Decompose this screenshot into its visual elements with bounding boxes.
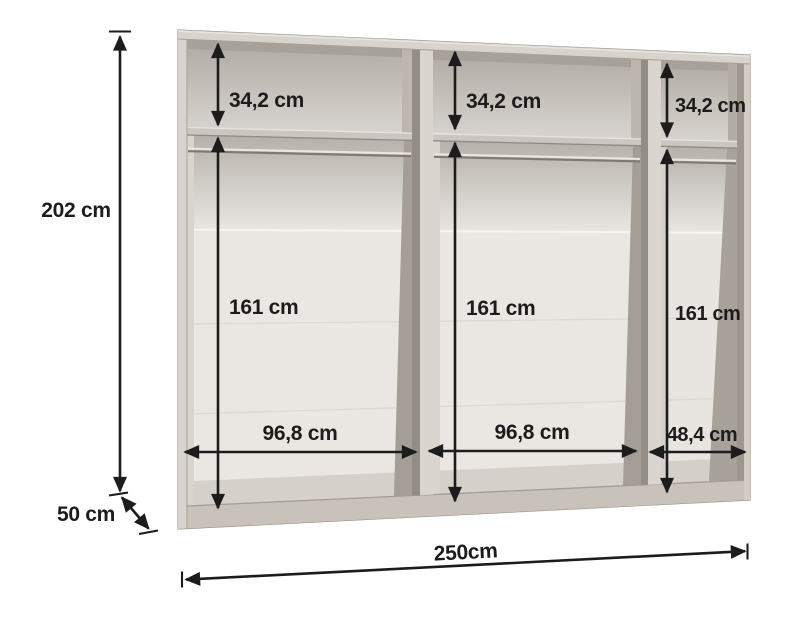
depth-dimension: 50 cm [57, 493, 158, 535]
compartment-3 [661, 60, 737, 484]
section-2-top-height-label: 34,2 cm [466, 90, 541, 113]
divider-2 [641, 59, 661, 485]
total-width-dimension: 250cm [182, 539, 748, 587]
height-dimension-label: 202 cm [41, 199, 110, 222]
section-1-hanging-height-label: 161 cm [229, 296, 298, 319]
diagram-canvas: 202 cm 50 cm 250cm 34,2 cm 161 cm 96,8 c… [0, 0, 788, 619]
section-1-top-height-label: 34,2 cm [229, 89, 304, 112]
height-dimension: 202 cm [41, 32, 131, 492]
right-panel [737, 55, 750, 501]
section-2-width-label: 96,8 cm [495, 421, 570, 444]
section-1-width-label: 96,8 cm [263, 422, 338, 445]
section-3-hanging-height-label: 161 cm [675, 303, 740, 325]
total-width-dimension-label: 250cm [433, 539, 498, 565]
left-panel [178, 30, 187, 529]
section-3-top-height-label: 34,2 cm [675, 95, 746, 117]
section-3-width-label: 48,4 cm [667, 424, 738, 446]
wardrobe-dimension-diagram: 202 cm 50 cm 250cm 34,2 cm 161 cm 96,8 c… [0, 0, 788, 619]
depth-dimension-label: 50 cm [57, 503, 115, 526]
section-2-hanging-height-label: 161 cm [466, 297, 535, 320]
divider-1 [412, 49, 433, 495]
